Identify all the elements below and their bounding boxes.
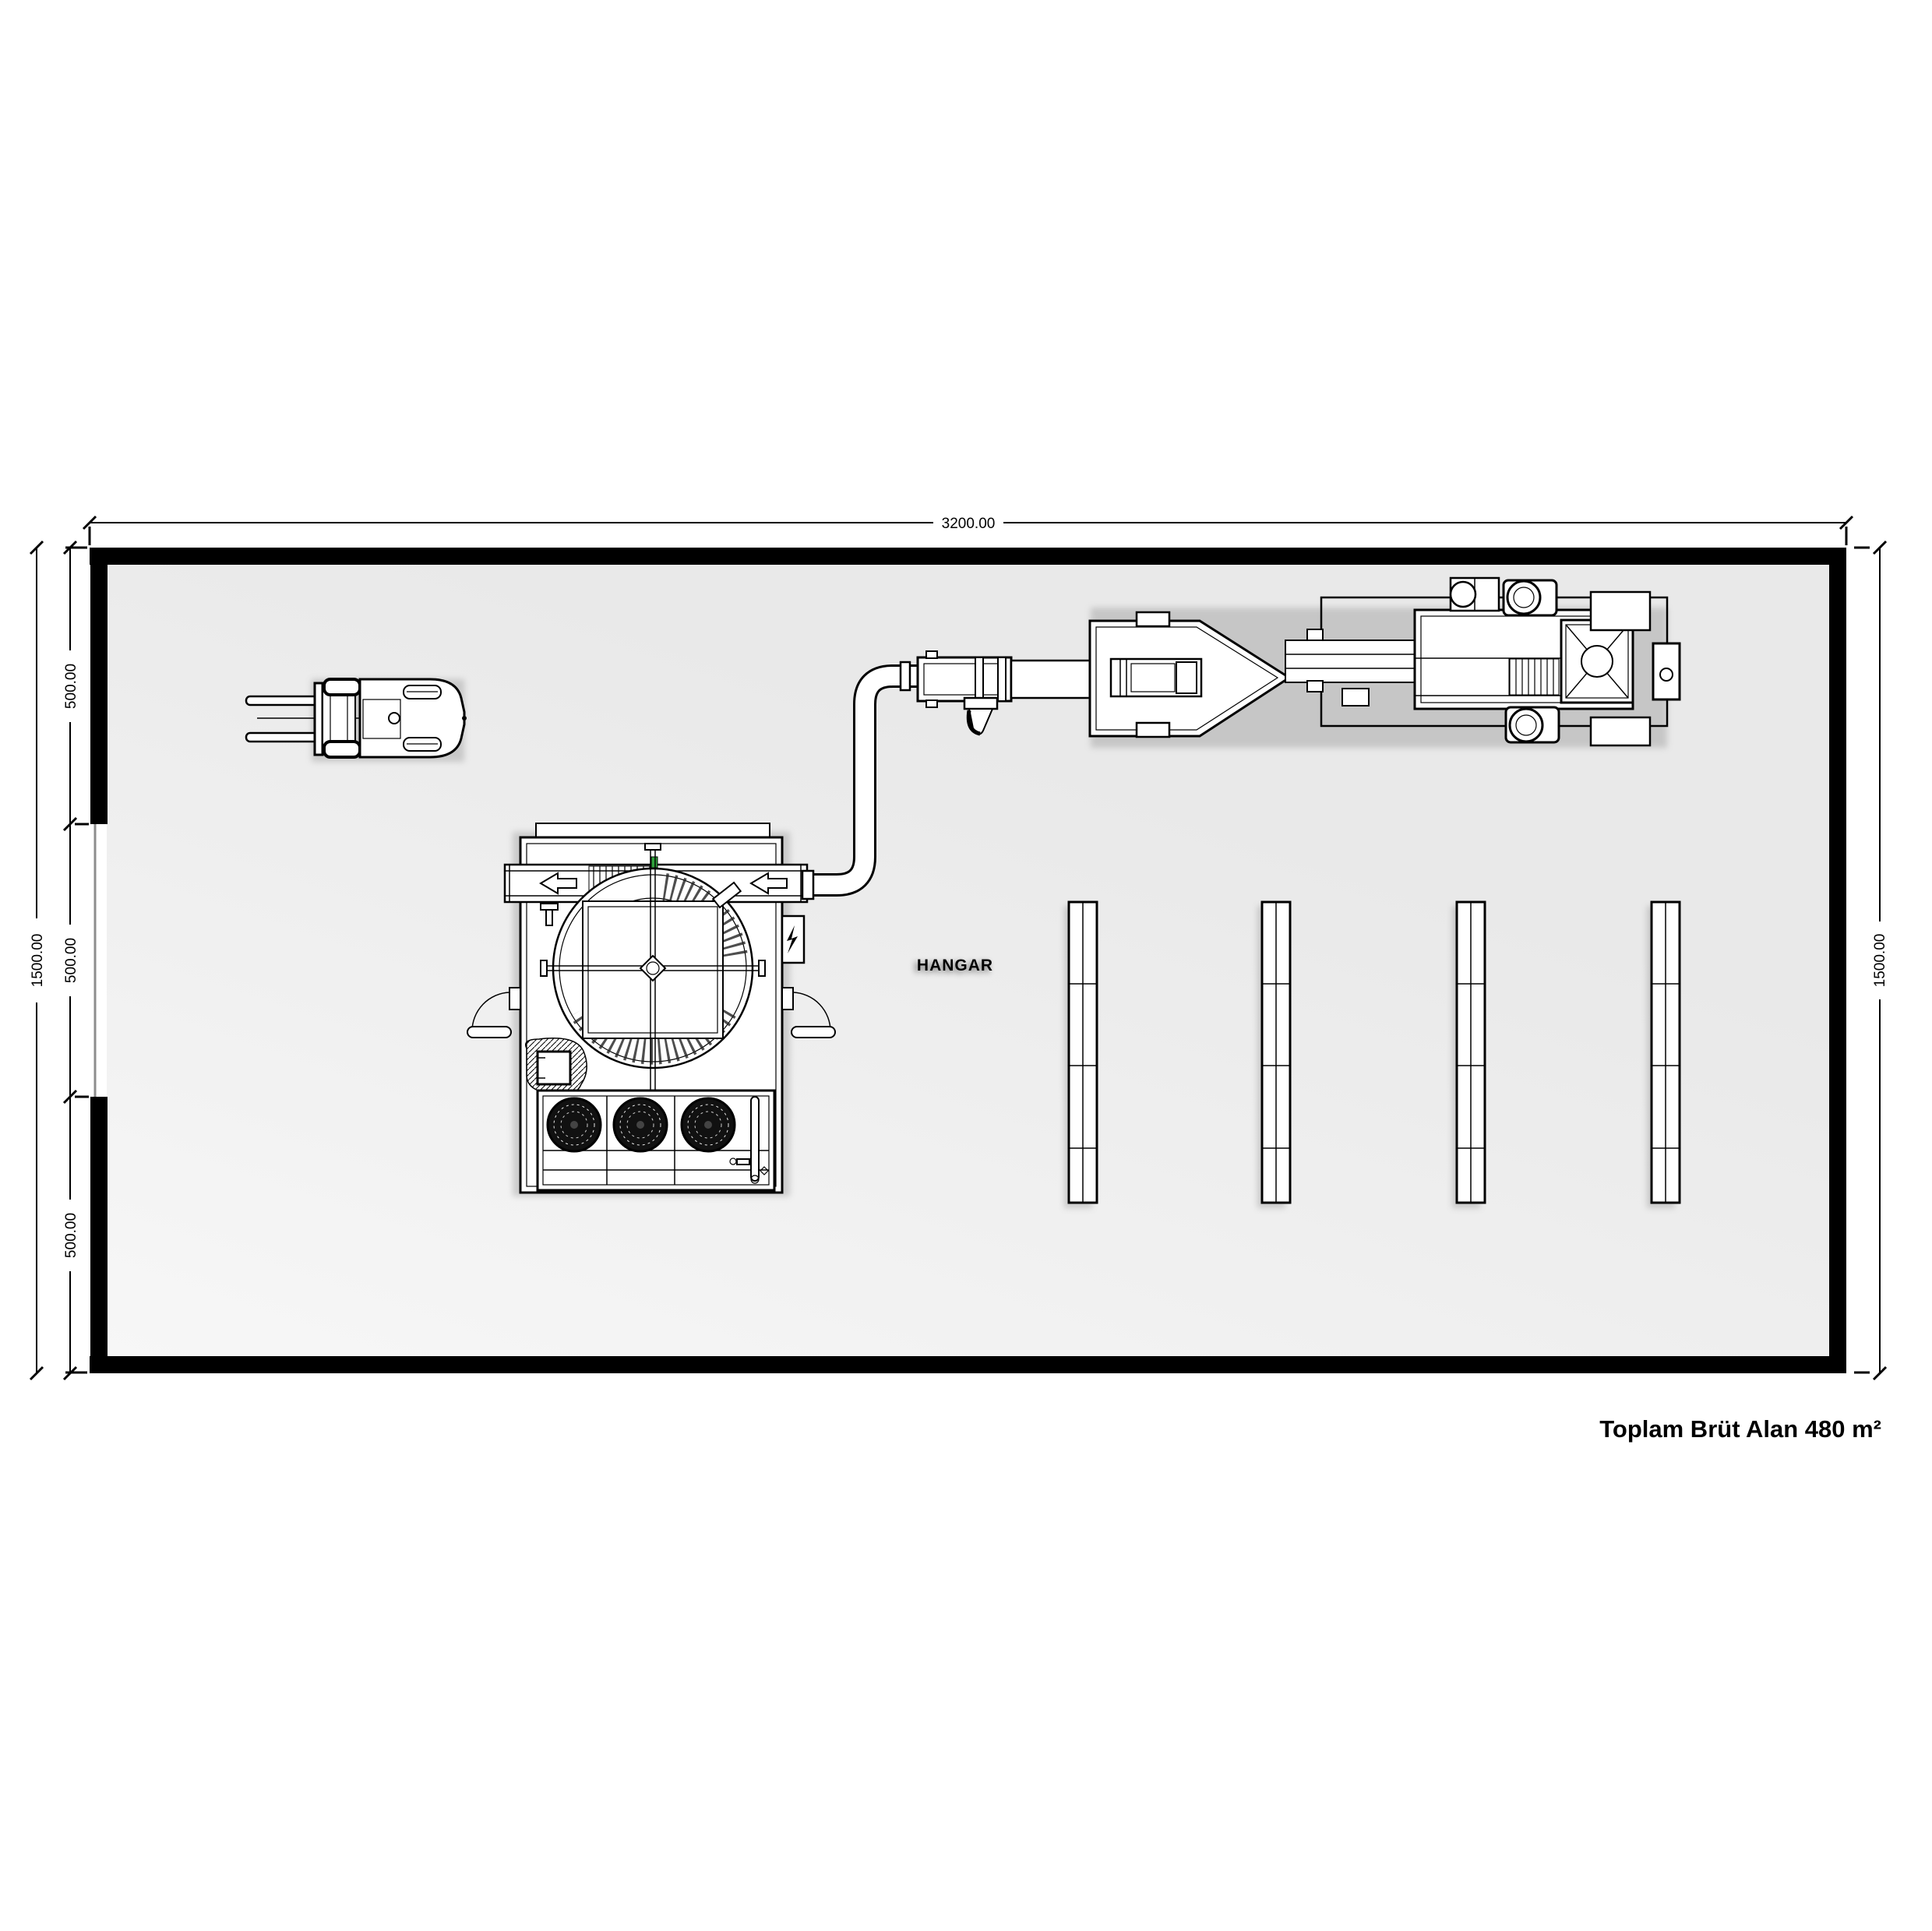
storage-rack-2 [1257,902,1290,1208]
area-label: Toplam Brüt Alan 480 m² [1599,1415,1881,1443]
dim-left-total-label: 1500.00 [30,934,46,988]
dimension-right: 1500.00 [1854,541,1893,1380]
room-label: HANGAR [917,957,993,974]
dimension-left-segments: 500.00 500.00 500.00 [63,541,89,1380]
dim-right-label: 1500.00 [1872,934,1888,988]
electric-panel [782,916,804,963]
storage-rack-3 [1452,902,1485,1208]
sensor-green-mark [651,857,658,868]
dim-top-label: 3200.00 [942,516,996,532]
hopper [1561,620,1633,703]
wall-bottom [90,1356,1846,1373]
fan-icon-1 [548,1098,601,1151]
fan-icon-2 [614,1098,667,1151]
dim-left-seg2-label: 500.00 [63,938,79,983]
plan-drawing-svg: 3200.00 1500.00 500.00 500.00 500.00 150… [0,0,1932,1931]
wall-top [90,548,1846,565]
rotary-screening-machine [467,823,835,1196]
dimension-top: 3200.00 [83,513,1853,545]
wall-left-lower [90,1097,108,1373]
dim-left-seg3-label: 500.00 [63,1213,79,1258]
fan-bank [538,1091,774,1190]
wall-right [1829,548,1846,1373]
wall-left-upper [90,548,108,824]
dim-left-seg1-label: 500.00 [63,664,79,709]
fan-icon-3 [682,1098,735,1151]
storage-rack-4 [1647,902,1680,1208]
storage-rack-1 [1064,902,1097,1208]
floorplan-canvas: 3200.00 1500.00 500.00 500.00 500.00 150… [0,0,1932,1931]
dimension-left-total: 1500.00 [30,541,50,1380]
rear-end-box [1653,643,1680,699]
foundation-pad [526,1038,587,1094]
